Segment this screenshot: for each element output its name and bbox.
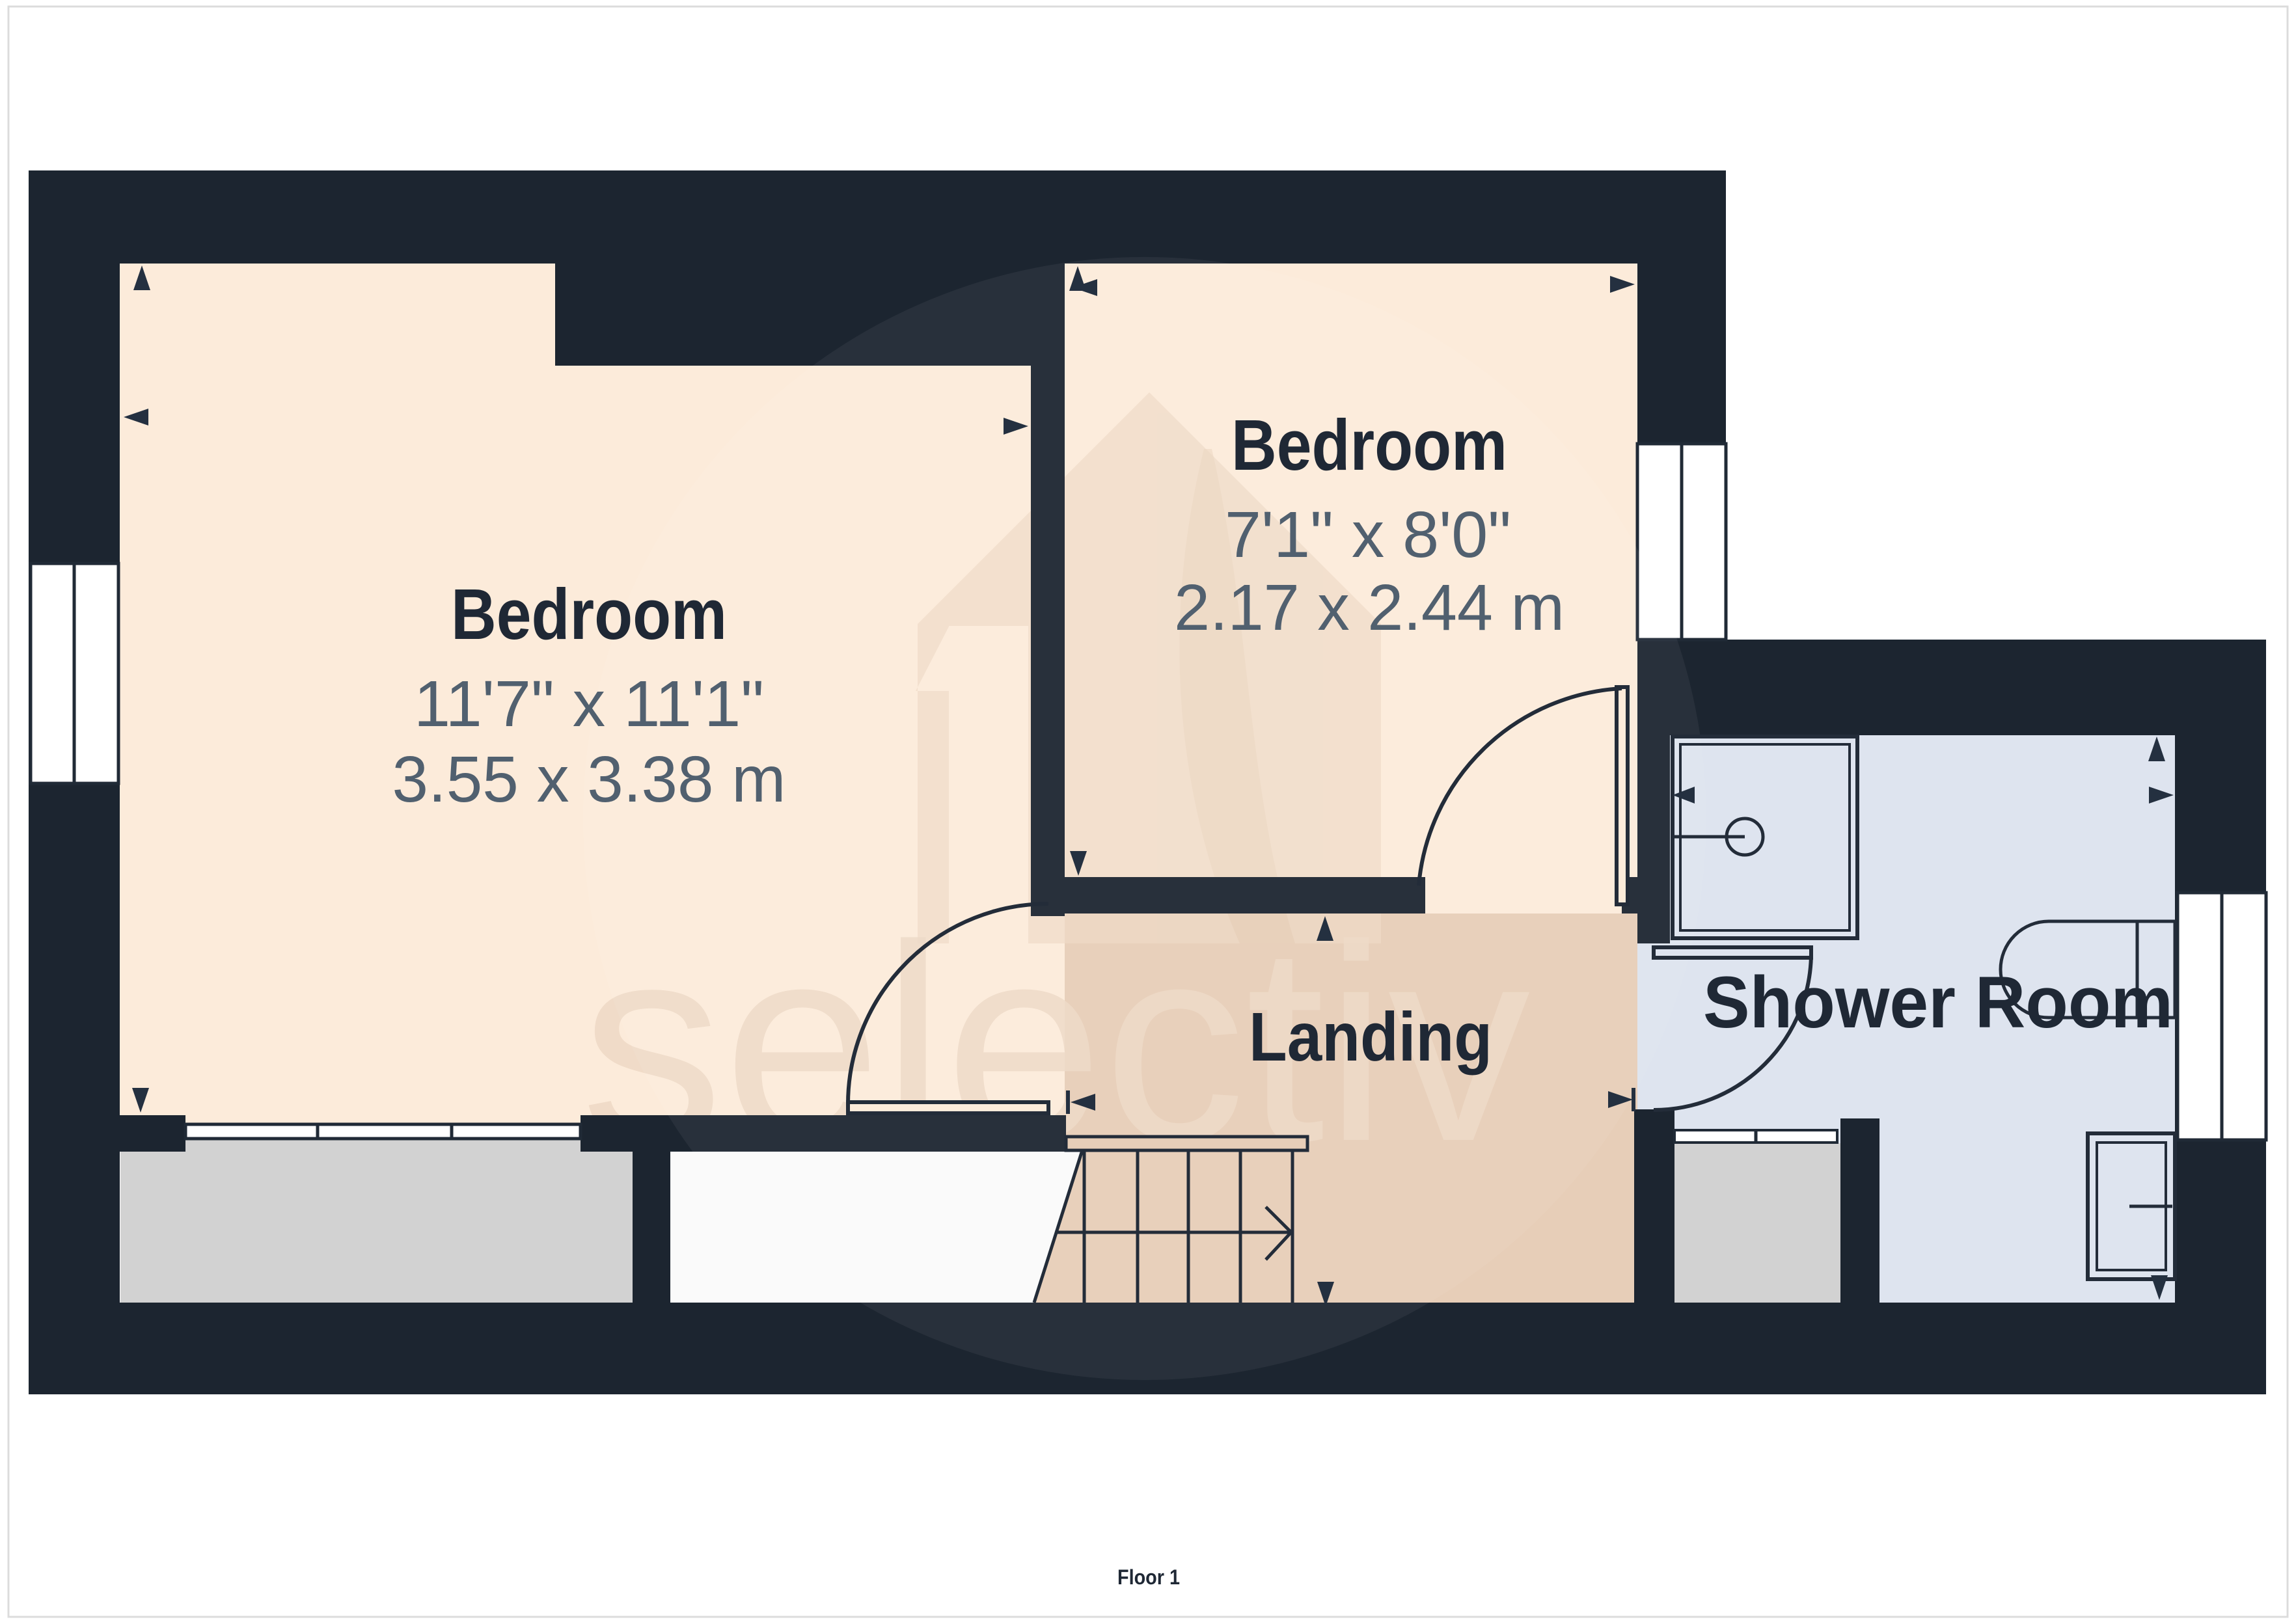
svg-text:Floor 1: Floor 1 <box>1117 1565 1180 1589</box>
svg-text:2.17 x 2.44 m: 2.17 x 2.44 m <box>1174 571 1565 644</box>
svg-text:Shower Room: Shower Room <box>1703 962 2173 1043</box>
svg-text:11'7" x 11'1": 11'7" x 11'1" <box>414 668 764 740</box>
svg-text:Bedroom: Bedroom <box>1231 405 1507 485</box>
svg-text:7'1" x 8'0": 7'1" x 8'0" <box>1225 498 1511 571</box>
svg-text:Bedroom: Bedroom <box>451 575 727 655</box>
svg-text:Landing: Landing <box>1249 999 1492 1076</box>
svg-text:3.55 x 3.38 m: 3.55 x 3.38 m <box>392 743 786 816</box>
